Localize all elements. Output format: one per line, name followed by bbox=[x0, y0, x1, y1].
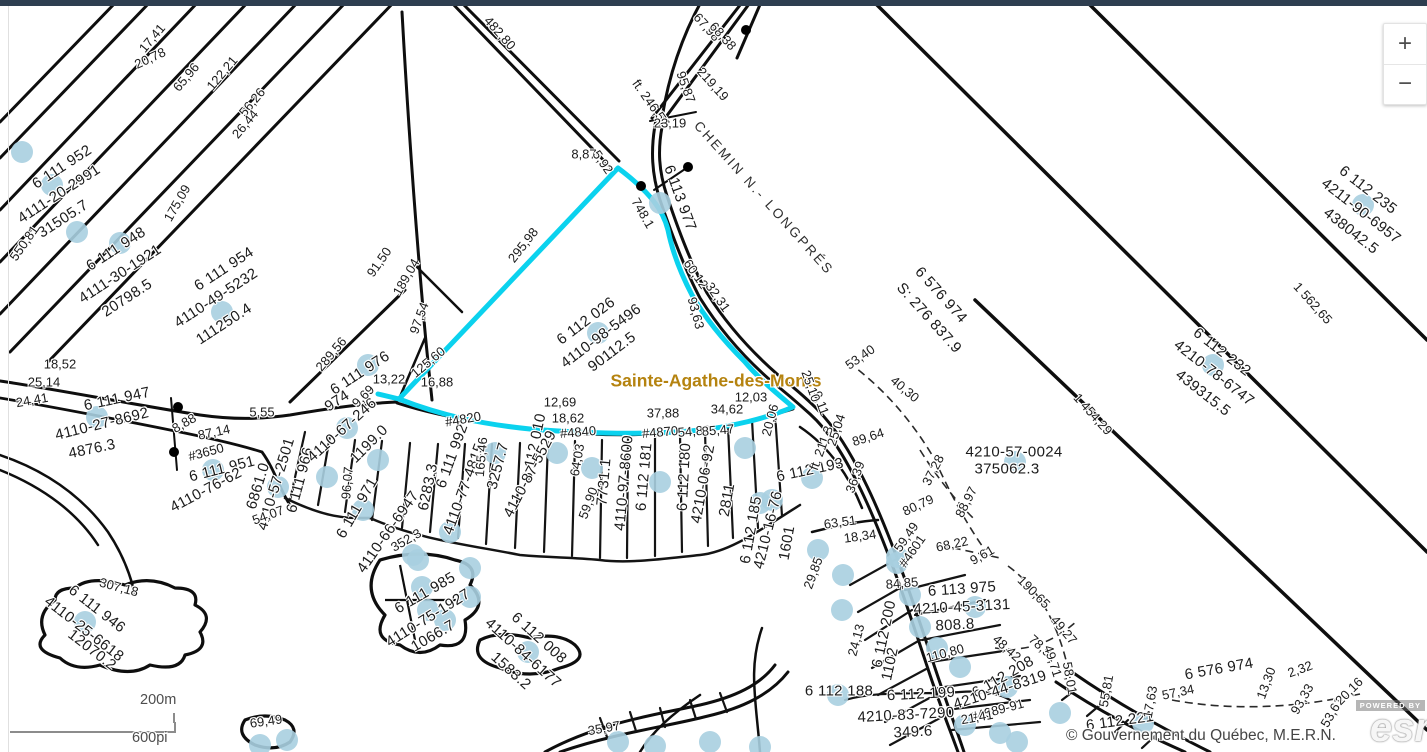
map-label: 4210-57-0024 bbox=[965, 444, 1062, 461]
map-label: 6 112 188 bbox=[805, 683, 873, 700]
map-left-border bbox=[8, 6, 9, 752]
map-label: 25,14 bbox=[28, 375, 61, 390]
parcel-point bbox=[734, 437, 756, 459]
zoom-out-button[interactable]: − bbox=[1384, 65, 1426, 105]
parcel-point bbox=[831, 599, 853, 621]
parcel-point bbox=[649, 192, 671, 214]
parcel-point bbox=[11, 141, 33, 163]
map-label: 18,52 bbox=[44, 357, 77, 372]
parcel-point bbox=[249, 734, 271, 752]
esri-logo: POWERED BY esri bbox=[1351, 700, 1427, 752]
selected-parcel-highlight[interactable] bbox=[378, 168, 793, 433]
parcel-point bbox=[1049, 702, 1071, 724]
parcel-point bbox=[749, 736, 771, 752]
scale-bar: 200m 600pi bbox=[10, 692, 240, 747]
parcel-point bbox=[276, 729, 298, 751]
map-label: Sainte-Agathe-des-Monts bbox=[611, 371, 822, 392]
parcel-point bbox=[644, 735, 666, 752]
map-label: #4870 bbox=[641, 423, 678, 441]
parcel-point bbox=[949, 656, 971, 678]
zoom-in-button[interactable]: + bbox=[1384, 24, 1426, 64]
esri-wordmark: esri bbox=[1370, 706, 1427, 751]
survey-marker bbox=[173, 402, 183, 412]
map-label: 37,88 bbox=[647, 406, 680, 421]
map-label: 84,85 bbox=[885, 574, 919, 592]
parcel-point bbox=[909, 616, 931, 638]
parcel-point bbox=[316, 466, 338, 488]
map-canvas[interactable]: Sainte-Agathe-des-MontsCHEMIN N.- LONGPR… bbox=[0, 0, 1427, 752]
map-label: 34,62 bbox=[711, 402, 744, 417]
parcel-point bbox=[699, 731, 721, 752]
map-label: 13,22 bbox=[373, 372, 406, 387]
survey-marker bbox=[169, 447, 179, 457]
survey-marker bbox=[683, 162, 693, 172]
map-label: 16,88 bbox=[421, 375, 454, 390]
survey-marker bbox=[636, 181, 646, 191]
scale-metric-label: 200m bbox=[140, 692, 176, 708]
parcel-point bbox=[459, 557, 481, 579]
parcel-point bbox=[407, 549, 429, 571]
scale-imperial-label: 600pi bbox=[132, 730, 167, 746]
map-label: 18,62 bbox=[552, 411, 585, 426]
zoom-control: + − bbox=[1383, 23, 1427, 105]
browser-top-edge bbox=[0, 0, 1427, 6]
map-label: 85,47 bbox=[701, 421, 735, 439]
attribution-text: © Gouvernement du Québec, M.E.R.N. bbox=[1066, 727, 1336, 745]
map-label: 12,69 bbox=[544, 395, 577, 410]
map-label: #4840 bbox=[559, 423, 596, 441]
map-label: 5,55 bbox=[249, 405, 274, 420]
map-label: 96,07 bbox=[338, 466, 356, 500]
map-label: 6 112 199 bbox=[886, 684, 955, 705]
map-label: 808.8 bbox=[935, 615, 975, 634]
survey-marker bbox=[741, 25, 751, 35]
map-label: 23,19 bbox=[654, 116, 687, 131]
map-label: 375062.3 bbox=[975, 461, 1040, 478]
parcel-point bbox=[832, 564, 854, 586]
map-label: 349.6 bbox=[893, 722, 933, 741]
parcel-point bbox=[1006, 731, 1028, 752]
